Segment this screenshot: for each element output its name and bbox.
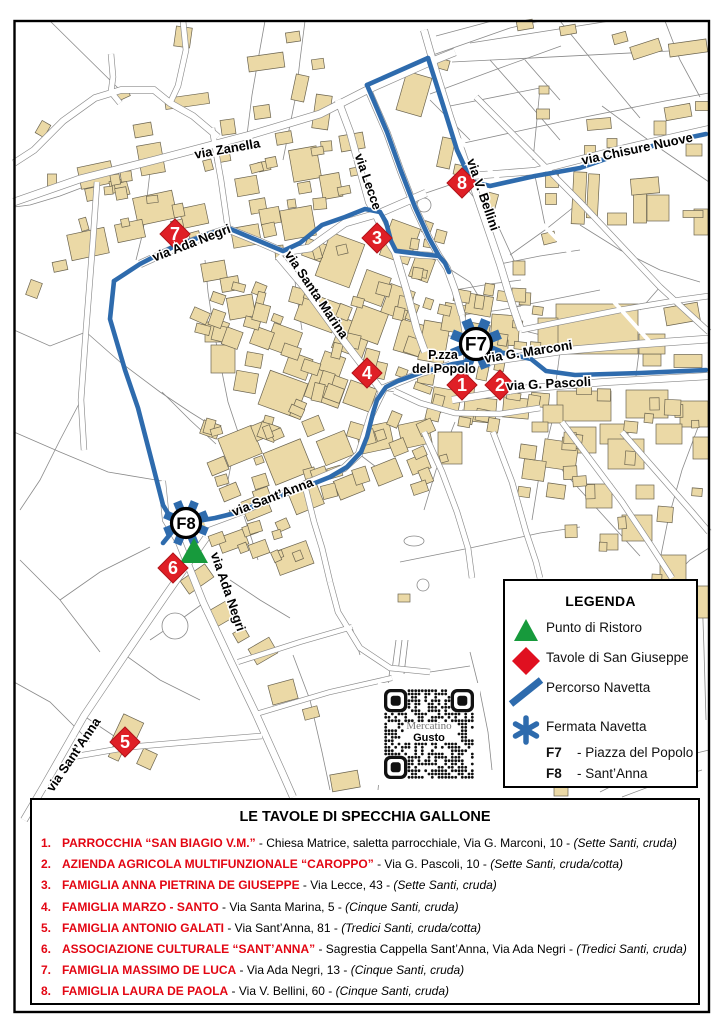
svg-text:5: 5 [120, 732, 130, 752]
svg-text:4: 4 [362, 363, 372, 383]
svg-text:F8: F8 [176, 515, 195, 533]
svg-text:2: 2 [495, 375, 505, 395]
svg-text:8: 8 [457, 173, 467, 193]
svg-text:P.zza: P.zza [428, 348, 459, 362]
svg-text:6: 6 [168, 558, 178, 578]
svg-text:3: 3 [372, 228, 382, 248]
svg-text:Gusto: Gusto [413, 732, 445, 744]
svg-text:1: 1 [457, 375, 467, 395]
svg-text:Mercatino: Mercatino [406, 720, 452, 732]
svg-text:del Popolo: del Popolo [412, 362, 476, 376]
